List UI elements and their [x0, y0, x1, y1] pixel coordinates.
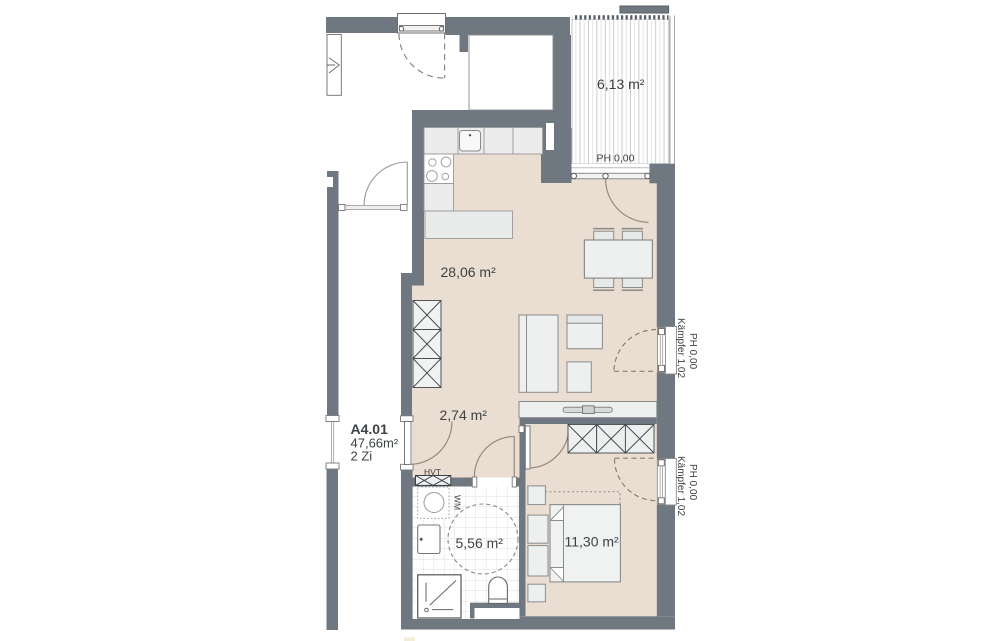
svg-text:PH 0,00: PH 0,00 [687, 464, 698, 501]
svg-text:6,13 m²: 6,13 m² [597, 76, 645, 92]
svg-text:28,06 m²: 28,06 m² [441, 264, 497, 280]
svg-text:2 Zi: 2 Zi [351, 449, 373, 464]
svg-text:11,30 m²: 11,30 m² [565, 534, 620, 550]
svg-text:WM: WM [453, 495, 463, 510]
svg-text:PH 0,00: PH 0,00 [597, 153, 635, 165]
svg-text:PH 0,00: PH 0,00 [687, 333, 698, 370]
svg-text:Kämpfer 1,02: Kämpfer 1,02 [675, 456, 686, 516]
svg-text:HVT: HVT [424, 467, 441, 477]
svg-text:2,74 m²: 2,74 m² [440, 407, 488, 423]
svg-text:Kämpfer 1,02: Kämpfer 1,02 [675, 318, 686, 378]
svg-text:5,56 m²: 5,56 m² [456, 535, 504, 551]
